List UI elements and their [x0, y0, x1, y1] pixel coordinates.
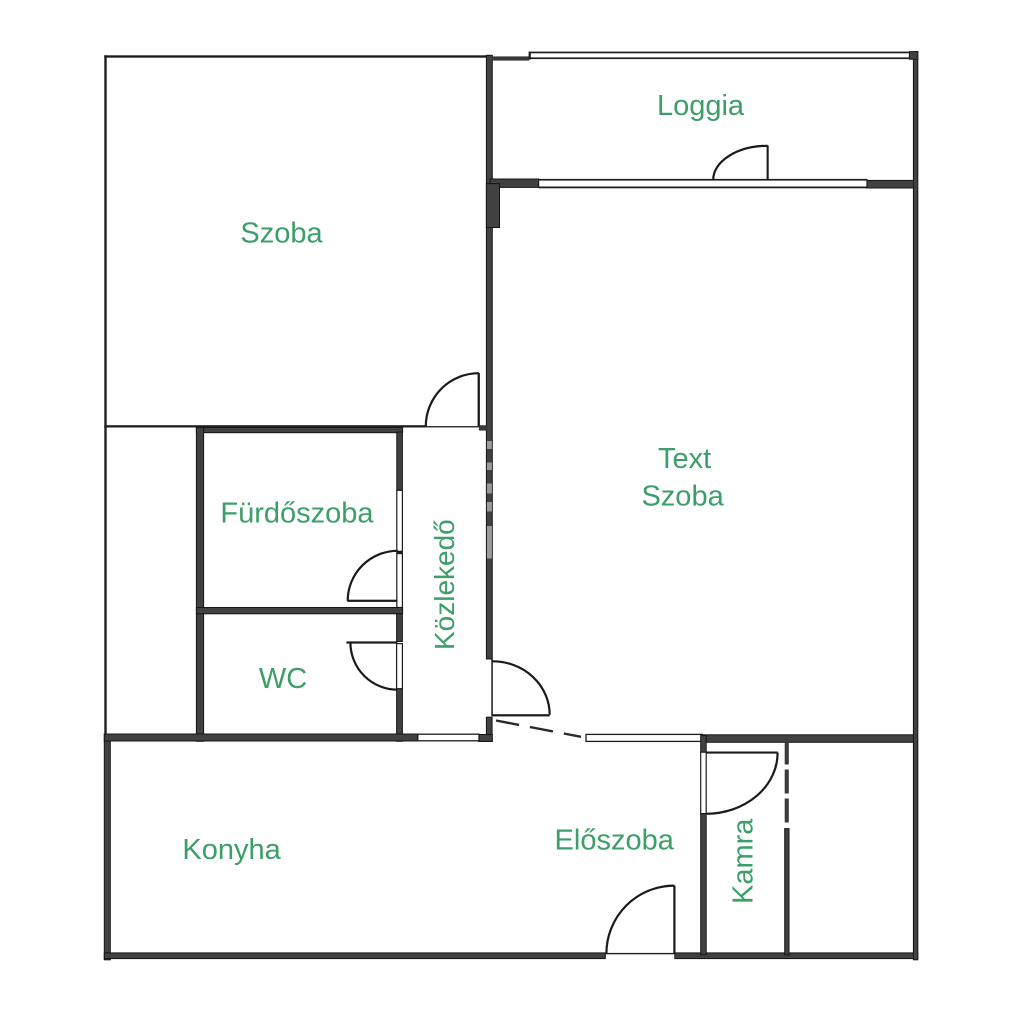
svg-text:Szoba: Szoba	[240, 218, 323, 250]
svg-text:Előszoba: Előszoba	[555, 825, 675, 857]
svg-text:Loggia: Loggia	[657, 90, 745, 122]
svg-text:Szoba: Szoba	[641, 481, 724, 513]
svg-text:Fürdőszoba: Fürdőszoba	[220, 498, 374, 530]
svg-text:Konyha: Konyha	[182, 834, 281, 866]
svg-text:Közlekedő: Közlekedő	[429, 519, 460, 650]
svg-text:Kamra: Kamra	[728, 818, 760, 904]
svg-text:WC: WC	[259, 663, 307, 695]
svg-text:Text: Text	[658, 443, 711, 475]
